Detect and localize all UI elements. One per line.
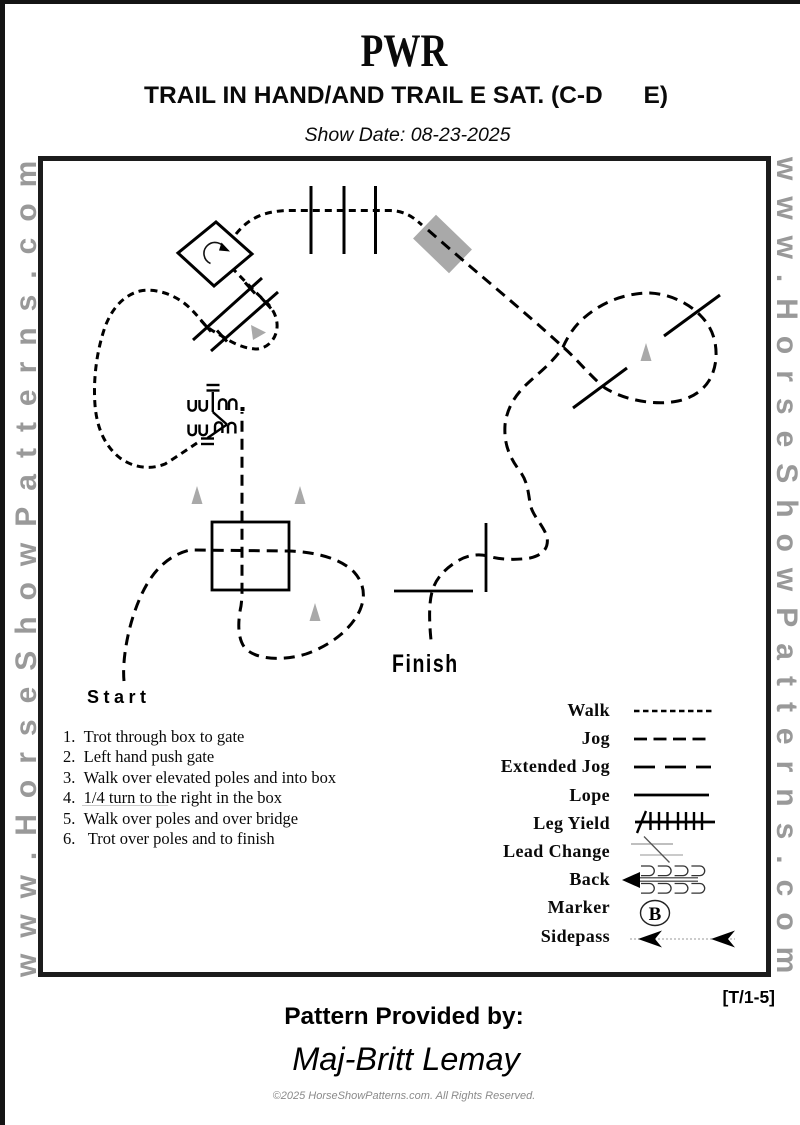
svg-text:B: B	[649, 904, 662, 925]
